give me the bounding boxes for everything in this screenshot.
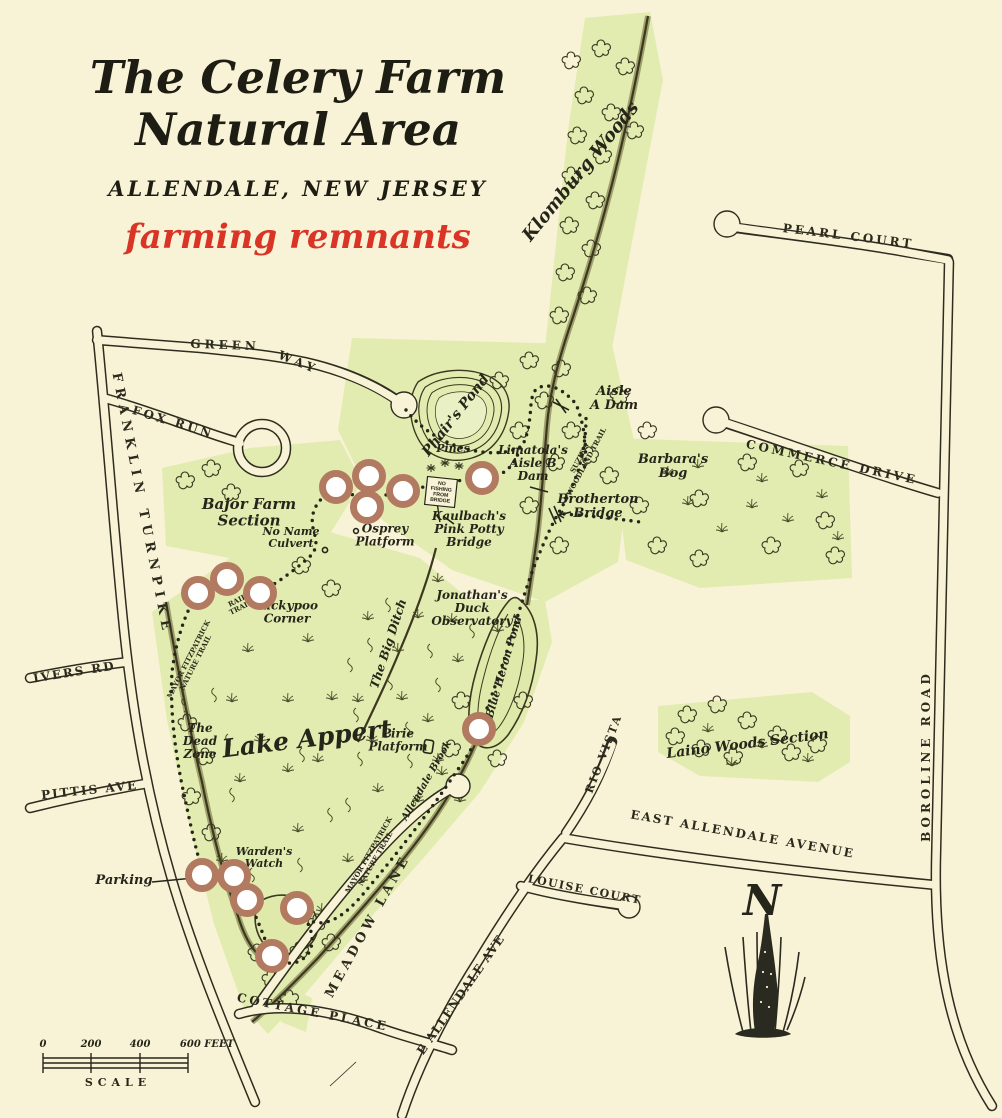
- fox-run-label: FOX RUN: [131, 403, 216, 441]
- map-title-line1: The Celery Farm: [88, 52, 508, 104]
- scale-tick-label: 200: [80, 1039, 102, 1050]
- farming-remnant-marker: [189, 862, 216, 889]
- compass-north-label: N: [741, 876, 783, 925]
- rio-vista-label: RIO VISTA: [583, 712, 625, 795]
- farming-remnant-marker: [323, 474, 350, 501]
- no-name-culvert-label: No NameCulvert: [261, 525, 319, 550]
- farming-remnant-marker: [234, 887, 261, 914]
- scale-tick-label: 0: [40, 1039, 47, 1050]
- map-title-line2: Natural Area: [88, 104, 508, 156]
- scale-tick-label: 400: [130, 1039, 151, 1050]
- cartographer-signature-mark: [330, 1062, 356, 1086]
- farming-remnant-marker: [356, 463, 383, 490]
- farming-remnant-marker: [354, 494, 381, 521]
- osprey-platform-marker: [354, 529, 359, 534]
- scale-bar-labels: 0200400600 FEET: [40, 1039, 236, 1050]
- e-allendale-ave-label: E ALLENDALE AVE: [414, 932, 507, 1057]
- aisle-a-dam-label: AisleA Dam: [588, 384, 638, 413]
- farming-remnant-marker: [259, 943, 286, 970]
- compass-bird-illustration: [725, 914, 805, 1038]
- way-label: WAY: [275, 348, 320, 377]
- celery-farm-map: { "title":{ "line1":"The Celery Farm", "…: [0, 0, 1002, 1118]
- the-dead-zone-label: TheDeadZone: [182, 721, 218, 761]
- ivers-rd-label: IVERS RD: [32, 659, 116, 686]
- pines-label: Pines: [435, 442, 470, 455]
- farming-remnant-marker: [214, 566, 241, 593]
- green-label: GREEN: [190, 337, 260, 353]
- farming-remnant-marker: [284, 895, 311, 922]
- map-subtitle: ALLENDALE, NEW JERSEY: [88, 176, 508, 201]
- map-annotation: farming remnants: [88, 217, 508, 257]
- scale-tick-label: 600 FEET: [180, 1039, 236, 1050]
- title-block: The Celery Farm Natural Area ALLENDALE, …: [88, 52, 508, 257]
- scale-caption: SCALE: [85, 1076, 151, 1089]
- scale-bar: [43, 1053, 188, 1073]
- farming-remnant-marker: [247, 580, 274, 607]
- osprey-platform-label: OspreyPlatform: [354, 521, 414, 548]
- parking-label: Parking: [94, 873, 152, 888]
- farming-remnant-marker: [469, 465, 496, 492]
- boroline-road-label: BOROLINE ROAD: [919, 670, 933, 842]
- farming-remnant-marker: [390, 478, 417, 505]
- farming-remnant-marker: [466, 716, 493, 743]
- farming-remnant-marker: [185, 580, 212, 607]
